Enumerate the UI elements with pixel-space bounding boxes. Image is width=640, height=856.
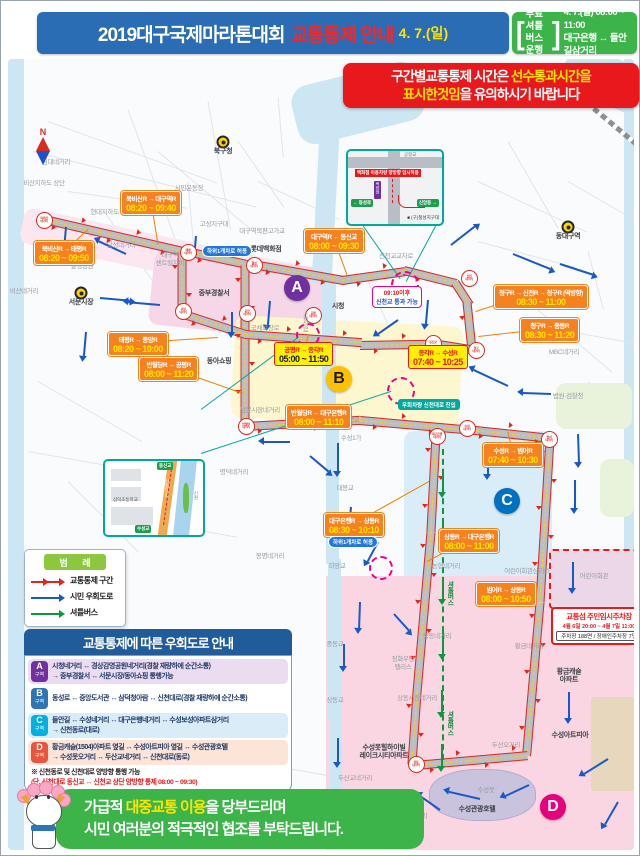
inset1-building: 백화점 (374, 181, 381, 199)
detour-row-c: C구역들안길 ↔ 수성네거리 ↔ 대구은행네거리 ↔ 수성보성아파트삼거리→ 신… (28, 713, 288, 738)
notice-line1: 구간별교통통제 시간은 선수통과시간을 (391, 68, 591, 86)
shuttle-bus-arrow (441, 690, 443, 712)
green-area-2 (600, 459, 634, 517)
detour-entry-label: 우회차량 신천대로 진입 (398, 399, 460, 410)
citizen-detour-arrow (450, 226, 475, 246)
legend-label: 교통통제 구간 (70, 575, 113, 586)
shuttle-info-box: [ 무료셔틀버스운행 ] 4. 7.(일) 08:00 ~ 11:00 대구은행… (512, 12, 637, 54)
citizen-detour-arrow (523, 392, 551, 395)
course-direction-arrow (429, 766, 434, 772)
detour-info-box: A구역시청네거리 ↔ 경상감영공원네거리(경찰 재량하에 순간소통)→ 중부경찰… (24, 655, 292, 792)
place-label: 황금캐슬 아파트 (557, 669, 582, 686)
traffic-control-time-label: 반월당R ← 대구은행R08:00 ~ 11:10 (286, 405, 351, 429)
place-label: 신천교교차로 (379, 253, 413, 261)
citizen-detour-arrow (264, 441, 290, 443)
course-direction-arrow (524, 670, 530, 675)
place-label: 국채보상로 (251, 325, 279, 333)
footer-line2: 시민 여러분의 적극적인 협조를 부탁드립니다. (84, 819, 424, 841)
place-label: 대구역 센트럴자이 (156, 252, 184, 268)
zone-badge: C구역 (31, 715, 48, 736)
course-direction-arrow (235, 278, 241, 282)
compass-n: N (30, 127, 56, 137)
place-label: 수성못힐하이빌 레이크시티아파트 (359, 745, 408, 762)
street-line (38, 381, 142, 442)
zone-badge: D구역 (31, 742, 48, 763)
place-label: 동성로 (300, 314, 308, 333)
course-direction-arrow (519, 726, 525, 731)
inset2-island (183, 483, 189, 513)
junction-circle: 수성 네거리 (459, 420, 476, 437)
detour-info-title: 교통통제에 따른 우회도로 안내 (24, 629, 292, 655)
zone-badge: B구역 (31, 688, 48, 709)
shuttle-time: 4. 7.(일) 08:00 ~ 11:00 (564, 7, 633, 33)
zone-marker-d: D (540, 794, 566, 820)
junction-circle: 대구은행 네거리 (429, 428, 446, 445)
place-label: 중동네거리 (423, 633, 451, 641)
course-direction-arrow (535, 699, 541, 704)
place-label: 수성1가 (341, 435, 361, 443)
citizen-detour-arrow (337, 443, 339, 471)
inset2-block-1 (111, 469, 141, 481)
place-label: 중부경찰서 (199, 290, 230, 298)
course-direction-arrow (422, 503, 428, 507)
traffic-control-time-label: 범어R → 상동R08:00 ~ 10:50 (476, 582, 536, 606)
inset-junction-detail: 공항교 백화점 이용차량 양방향 임시허용 백화점 ← 동성로 신암동 → ■ … (346, 149, 444, 226)
inset1-note: ■ (구)칠성지구대 (407, 215, 439, 221)
station-icon (562, 221, 575, 234)
citizen-detour-arrow (425, 300, 429, 324)
course-direction-arrow (373, 424, 378, 430)
citizen-detour-arrow (337, 738, 339, 762)
traffic-control-time-label: 반월당R → 공평R08:00 ~ 11:20 (139, 357, 198, 381)
detour-text: 들안길 ↔ 수성네거리 ↔ 대구은행네거리 ↔ 수성보성아파트삼거리→ 신천동로… (52, 716, 229, 736)
place-label: 달성네거리 (107, 242, 135, 250)
detour-row-d: D구역황금캐슬(1504)아파트 옆길 ↔ 수성아트피아 옆길 ↔ 수성관광호텔… (28, 740, 288, 765)
title-bar: 2019대구국제마라톤대회 교통통제 안내 4. 7.(일) (37, 12, 509, 54)
legend-label: 셔틀버스 (70, 607, 97, 618)
place-label: 정화우방 팰리스 (392, 656, 415, 672)
junction-circle: 상동 네거리 (408, 756, 425, 773)
citizen-detour-arrow (83, 332, 87, 356)
course-direction-arrow (402, 333, 406, 339)
place-label: 비산네거리 (10, 288, 38, 296)
place-label: 두산오거리 (492, 742, 520, 750)
sincheon-stream-4 (328, 559, 341, 719)
shuttle-schedule: 4. 7.(일) 08:00 ~ 11:00 대구은행 ↔ 들안길삼거리 (564, 7, 633, 58)
inset-bridge-detail: 삼덕초등학교 신천 신천대로 동신교 수성교 (103, 459, 205, 537)
place-label: 시청 (332, 303, 344, 311)
traffic-control-time-label: 태평R → 중앙R08:20 ~ 10:00 (108, 332, 168, 356)
inset2-sign-top: 동신교 (157, 462, 173, 470)
course-direction-arrow (249, 362, 255, 366)
course-direction-arrow (551, 479, 557, 483)
citizen-detour-arrow (231, 312, 233, 332)
mascot-scarf (31, 825, 55, 831)
place-label: MBC네거리 (549, 349, 580, 357)
shuttle-route: 대구은행 ↔ 들안길삼거리 (564, 33, 633, 59)
place-label: 대봉교 (336, 485, 353, 493)
legend-item: 교통통제 구간 (31, 575, 119, 586)
inset1-route-arrow (392, 179, 393, 203)
street-line (48, 121, 217, 184)
course-direction-arrow (235, 334, 241, 338)
highlight-circle (369, 556, 393, 580)
place-label: 법원·검찰청 (553, 393, 583, 401)
course-direction-arrow (295, 260, 300, 267)
inset2-school-block (111, 507, 153, 525)
place-label: 동대구역 (556, 233, 581, 241)
detour-text: 동성로 ↔ 중앙도서관 ↔ 삼덕청아람 ↔ 신천대로(경찰 재량하에 순간소통) (52, 694, 247, 704)
inset2-river-label: 신천 (193, 491, 199, 500)
legend-symbol (31, 577, 65, 585)
course-direction-arrow (320, 279, 325, 286)
course-direction-arrow (456, 750, 461, 756)
bracket-open: [ (516, 17, 525, 48)
zone-badge: A구역 (31, 661, 48, 682)
course-direction-arrow (186, 293, 192, 297)
street-line (128, 109, 177, 241)
traffic-control-time-label: 대구역R ← 동신교08:00 ~ 09:30 (304, 229, 364, 253)
junction-circle: 청구 네거리 (468, 342, 485, 359)
controlled-road (241, 265, 250, 427)
junction-circle: 북비산 네거리 (36, 212, 53, 229)
detour-text: 황금캐슬(1504)아파트 옆길 ↔ 수성아트피아 옆길 ↔ 수성관광호텔→ 수… (52, 743, 228, 763)
place-label: 황금네거리 (515, 643, 543, 651)
legend-label: 시민 우회도로 (70, 591, 113, 602)
compass: N S (30, 127, 56, 167)
detour-row-b: B구역동성로 ↔ 중앙도서관 ↔ 삼덕청아람 ↔ 신천대로(경찰 재량하에 순간… (28, 686, 288, 711)
lane-allow-label: 하위1개차로 허용 (328, 536, 378, 548)
inset1-sign-left: ← 동성로 (351, 199, 373, 207)
inset1-notice: 백화점 이용차량 양방향 임시허용 (355, 169, 421, 177)
place-label: 어린이회관삼거리 (504, 568, 549, 576)
notice-banner: 구간별교통통제 시간은 선수통과시간을 표시한것임을 유의하시기 바랍니다 (343, 63, 639, 108)
green-area-1 (556, 383, 632, 429)
mascot-face (26, 795, 62, 827)
junction-circle: 중앙 네거리 (239, 305, 256, 322)
notice-line2: 표시한것임을 유의하시기 바랍니다 (403, 86, 580, 104)
street-line (238, 141, 285, 207)
detour-row-a: A구역시청네거리 ↔ 경상감영공원네거리(경찰 재량하에 순간소통)→ 중부경찰… (28, 659, 288, 684)
course-direction-arrow (418, 733, 424, 737)
detour-text: 시청네거리 ↔ 경상감영공원네거리(경찰 재량하에 순간소통)→ 중부경찰서 ↔… (52, 662, 211, 682)
poster: { "header": { "title": "2019대구국제마라톤대회", … (0, 0, 640, 856)
junction-circle: 서성 네거리 (175, 303, 192, 320)
station-icon (217, 136, 230, 149)
place-label: 희망교 (328, 563, 345, 571)
place-label: 대구역북편고가교 (239, 228, 284, 236)
bracket-close: ] (552, 17, 561, 48)
place-label: 셔틀버스 (445, 711, 453, 736)
citizen-detour-arrow (572, 562, 574, 588)
traffic-control-time-label: 북비산R → 태평R08:20 ~ 09:50 (34, 241, 94, 265)
citizen-detour-arrow (560, 263, 593, 275)
course-direction-arrow (382, 263, 387, 269)
place-label: 상동시장네거리 (397, 695, 437, 703)
course-direction-arrow (459, 315, 465, 320)
shuttle-bus-arrow (442, 470, 444, 492)
inset1-road-vertical (388, 151, 400, 224)
station-icon (75, 287, 88, 300)
inset1-turn-arrow (398, 195, 425, 208)
mascot (15, 783, 71, 853)
zone-marker-b: B (326, 366, 352, 392)
street-line (508, 141, 559, 228)
course-direction-arrow (425, 447, 431, 451)
course-direction-arrow (532, 562, 538, 566)
place-label: 명덕네거리 (220, 469, 248, 477)
traffic-control-time-label: 청구R → 신천R → 청구R (역방향)08:30 ~ 11:00 (494, 285, 588, 309)
street-line (278, 97, 284, 157)
place-label: 롯데백화점 (251, 246, 282, 254)
citizen-detour-arrow (577, 434, 580, 462)
lane-allow-label: 하위1개차로 허용 (202, 245, 252, 257)
legend-title: 범 례 (44, 554, 106, 570)
traffic-control-time-label: 수성R → 범어R07:40 ~ 10:30 (483, 443, 543, 467)
junction-circle: 칠성 네거리 (246, 257, 263, 274)
place-label: 셔틀버스 (445, 581, 453, 606)
zone-marker-a: A (284, 275, 310, 301)
traffic-control-time-label: 종각R → 수성R07:40 ~ 10:25 (408, 345, 468, 369)
place-label: 남문시장네거리 (240, 407, 280, 415)
legend-item: 시민 우회도로 (31, 591, 119, 602)
event-date: 4. 7.(일) (399, 23, 448, 43)
inset2-sign-bottom: 수성교 (135, 525, 151, 533)
footer-banner: 가급적 대중교통 이용을 당부드리며 시민 여러분의 적극적인 협조를 부탁드립… (56, 789, 424, 849)
inset2-school-label: 삼덕초등학교 (113, 497, 138, 503)
traffic-control-time-label: 대구은행R → 상동R08:30 ~ 10:10 (324, 513, 384, 537)
traffic-control-time-label: 공평R → 종각R05:00 ~ 11:50 (274, 342, 333, 366)
apartment-block (591, 697, 634, 791)
event-title: 2019대구국제마라톤대회 (98, 20, 285, 47)
junction-circle: 반월당 네거리 (238, 418, 255, 435)
legend-arrow (31, 581, 59, 583)
place-label: 비산지하도 상단 (23, 180, 64, 188)
bridge-pass-label: 09:10이후신천교 통과 가능 (372, 286, 422, 308)
shuttle-bus-arrow (442, 577, 444, 599)
place-label: 상동교 (326, 697, 343, 705)
legend-item: 셔틀버스 (31, 607, 119, 618)
course-direction-arrow (415, 600, 421, 605)
traffic-control-time-label: 상동R → 대구은행R08:00 ~ 11:00 (439, 529, 499, 553)
place-label: 어린이회관 (580, 573, 608, 581)
legend-arrow (31, 597, 59, 599)
place-label: 동아쇼핑 (207, 358, 232, 366)
junction-circle: 신천 네거리 (461, 270, 478, 287)
place-label: 수성관광호텔 (459, 806, 496, 814)
place-label: 두산교네거리 (338, 775, 372, 783)
place-label: 봉명네거리 (256, 553, 284, 561)
legend-symbol (31, 593, 65, 601)
inset1-road-label: 공항교 (404, 152, 416, 158)
course-direction-arrow (343, 330, 347, 336)
legend-arrow (31, 613, 59, 615)
legend: 범 례 교통통제 구간시민 우회도로셔틀버스 (24, 549, 126, 627)
footer-line1: 가급적 대중교통 이용을 당부드리며 (84, 797, 424, 819)
citizen-detour-arrow (473, 369, 508, 387)
shuttle-label: 무료셔틀버스운행 (526, 9, 551, 57)
shuttle-bus-arrow (441, 744, 443, 766)
place-label: 수성못 (477, 787, 494, 795)
citizen-detour-arrow (568, 692, 570, 718)
place-label: 수성아트피아 (552, 732, 589, 740)
place-label: 고성지구대 (200, 221, 228, 229)
river-left-margin (8, 59, 24, 850)
course-direction-arrow (356, 280, 361, 286)
place-label: 중동교 (326, 641, 343, 649)
course-direction-arrow (265, 269, 270, 276)
course-direction-arrow (548, 535, 554, 539)
poster-subtitle: 교통통제 안내 (290, 20, 393, 47)
compass-rose (36, 137, 50, 151)
traffic-control-time-label: 북비산R → 대구역R08:20 ~ 09:40 (121, 191, 181, 215)
legend-symbol (31, 609, 65, 617)
traffic-control-time-label: 청구R → 중동R08:30 ~ 11:20 (520, 318, 579, 342)
course-direction-arrow (374, 348, 378, 354)
zone-marker-c: C (494, 488, 520, 514)
temporary-parking-label: 교통섬 주민임시주차장4월 6일 20:00 ~ 4월 7일 11:00주차장 … (551, 607, 634, 645)
place-label: 농협네거리 (432, 563, 460, 571)
junction-circle: 범어 네거리 (541, 431, 558, 448)
place-label: 북구청 (214, 148, 232, 156)
citizen-detour-arrow (574, 480, 576, 508)
course-direction-arrow (508, 422, 513, 428)
place-label: 서문시장 (69, 299, 94, 307)
